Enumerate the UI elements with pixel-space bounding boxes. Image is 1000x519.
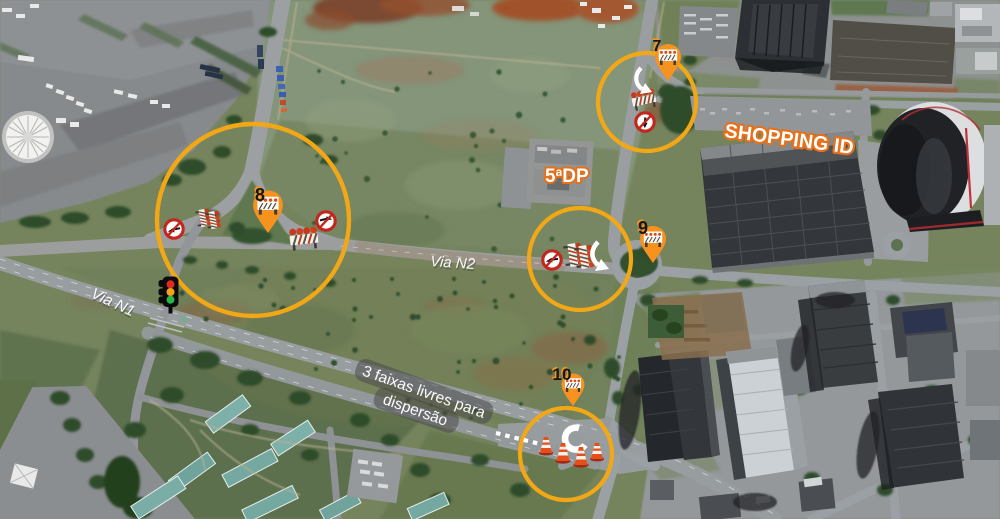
svg-text:5aDP: 5aDP xyxy=(545,165,589,187)
svg-text:9: 9 xyxy=(638,218,648,238)
svg-text:10: 10 xyxy=(553,365,572,384)
svg-text:7: 7 xyxy=(653,38,662,55)
svg-text:8: 8 xyxy=(255,185,265,205)
svg-text:Via N2: Via N2 xyxy=(430,253,476,273)
